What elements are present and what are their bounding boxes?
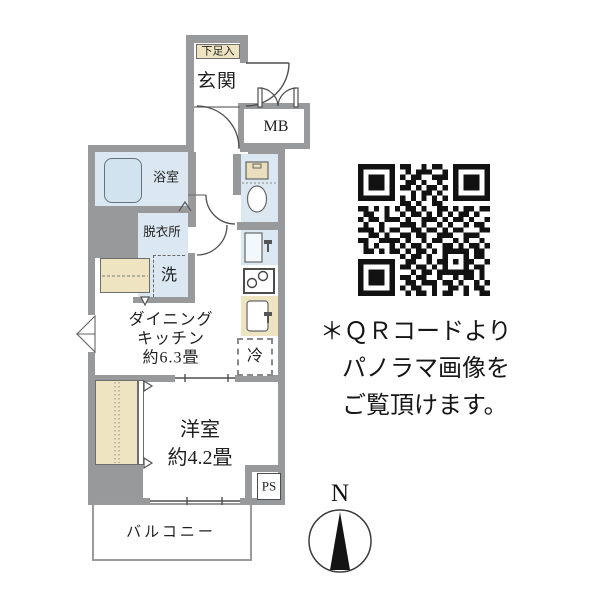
bathtub: [104, 158, 142, 203]
label-shoe-box: 下足入: [202, 46, 235, 59]
sliding-door: [175, 374, 235, 382]
closet-dk: [100, 258, 150, 293]
stove: [243, 268, 275, 294]
compass-needle: [330, 512, 350, 570]
label-ps: PS: [262, 480, 276, 495]
label-mb: MB: [264, 118, 289, 136]
closet-western-room: [95, 380, 138, 465]
washbasin-counter: [241, 296, 278, 336]
qr-note-line2: パノラマ画像を: [320, 351, 555, 388]
label-western-room: 洋室 約4.2畳: [168, 416, 233, 472]
front-door-swing: [246, 63, 289, 106]
qr-note-text: ＊ＱＲコードより パノラマ画像を ご覧頂けます。: [320, 314, 555, 425]
label-bathroom: 浴室: [153, 171, 179, 186]
qr-note-line3: ご覧頂けます。: [320, 388, 555, 425]
label-balcony: バルコニー: [126, 524, 216, 541]
label-dressing: 脱衣所: [143, 225, 181, 239]
toilet-area: [241, 154, 278, 222]
compass: [309, 510, 371, 572]
qr-code: [358, 164, 490, 296]
label-genkan: 玄関: [197, 71, 237, 93]
floor-plan: 下足入 玄関 MB 浴室 脱衣所 洗 ダイニング キッチン 約6.3畳 冷 洋室…: [0, 0, 600, 600]
genkan-door-swing: [194, 106, 240, 148]
kitchen-sink-counter: [241, 230, 278, 265]
qr-note-line1: ＊ＱＲコードより: [320, 314, 555, 351]
compass-north-label: N: [331, 480, 349, 508]
dk-window: [77, 316, 95, 352]
label-fridge: 冷: [247, 348, 263, 366]
closet-door-track: [138, 380, 144, 465]
label-dk: ダイニング キッチン 約6.3畳: [128, 311, 213, 368]
label-washer: 洗: [161, 267, 177, 285]
